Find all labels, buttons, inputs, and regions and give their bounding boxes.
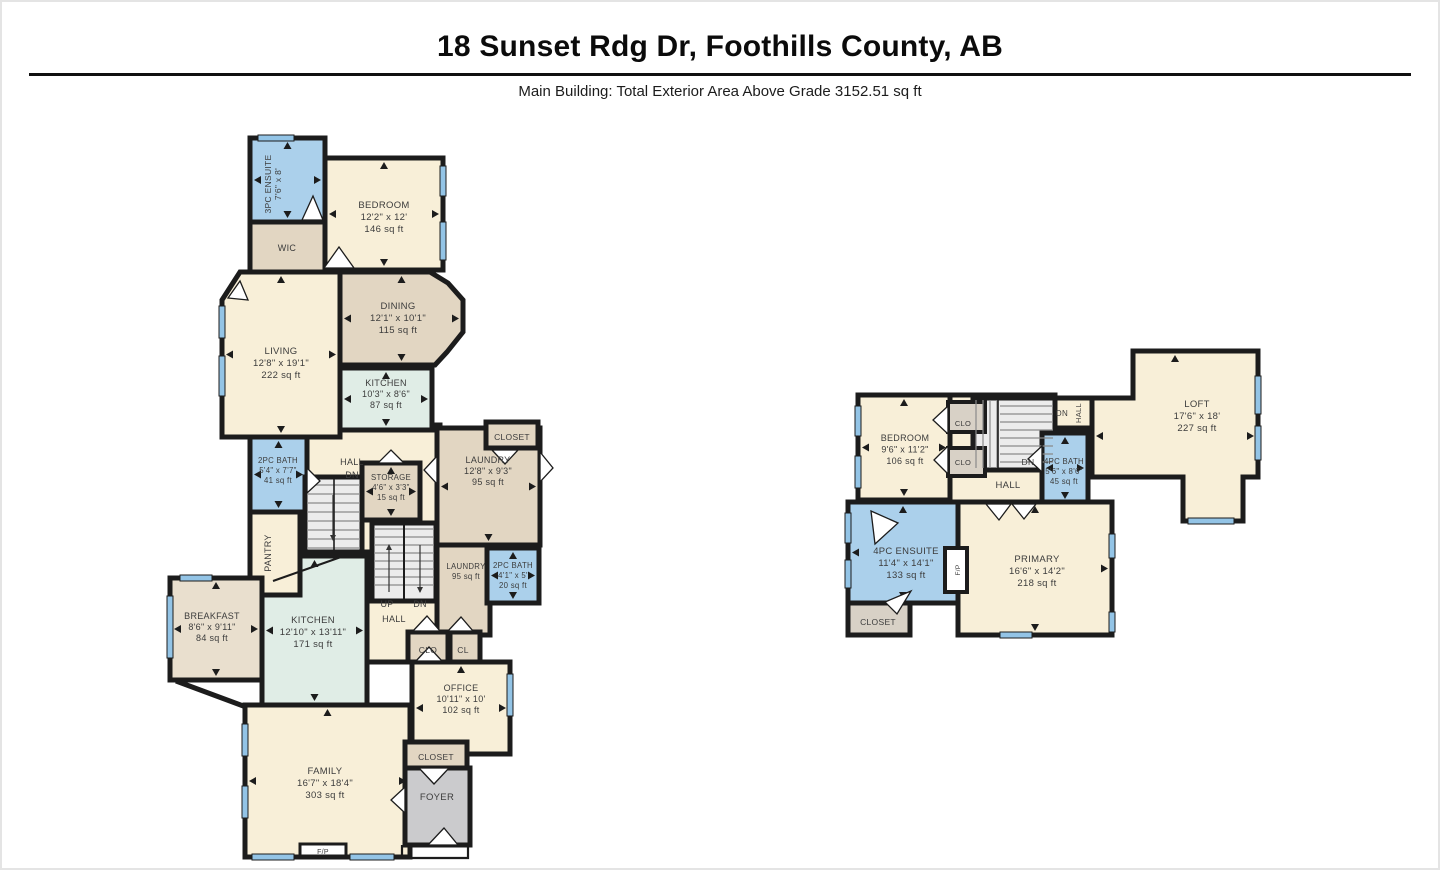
hall-upper-top xyxy=(1055,398,1092,428)
closet-cl xyxy=(450,632,480,662)
window xyxy=(1000,632,1032,638)
window xyxy=(855,456,861,488)
window xyxy=(855,406,861,436)
room-4pc-ensuite xyxy=(848,502,958,603)
window xyxy=(219,356,225,396)
room-dining xyxy=(340,272,463,365)
fireplace xyxy=(300,844,346,856)
door-swing xyxy=(540,452,553,482)
main-floor-plan: 3PC ENSUITE7'6" x 8'WICBEDROOM12'2" x 12… xyxy=(167,135,553,860)
floor-plan-canvas: 3PC ENSUITE7'6" x 8'WICBEDROOM12'2" x 12… xyxy=(0,0,1440,870)
window xyxy=(1188,518,1234,524)
window xyxy=(258,135,294,141)
window xyxy=(167,596,173,658)
window xyxy=(440,222,446,260)
window xyxy=(219,306,225,338)
wall xyxy=(176,681,246,707)
window xyxy=(507,674,513,716)
window xyxy=(1109,612,1115,632)
window xyxy=(242,724,248,756)
room-bedroom-upper xyxy=(858,395,950,500)
room-loft xyxy=(1092,351,1258,521)
window xyxy=(845,513,851,543)
closet-upper xyxy=(486,422,538,448)
window xyxy=(350,854,394,860)
page-subtitle: Main Building: Total Exterior Area Above… xyxy=(0,83,1440,100)
closet-foyer xyxy=(405,742,467,768)
room-breakfast xyxy=(170,578,262,680)
page-header: 18 Sunset Rdg Dr, Foothills County, AB M… xyxy=(0,0,1440,100)
room-family xyxy=(245,705,410,857)
window xyxy=(252,854,294,860)
fireplace xyxy=(945,548,967,592)
window xyxy=(242,786,248,818)
room-wic xyxy=(250,222,325,273)
page-title: 18 Sunset Rdg Dr, Foothills County, AB xyxy=(0,0,1440,64)
window xyxy=(1255,426,1261,460)
window xyxy=(845,560,851,588)
closet-clo-upper xyxy=(948,402,985,432)
upper-floor-plan: BEDROOM9'6" x 11'2"106 sq ft4PC BATH5'6"… xyxy=(845,351,1261,638)
floorplan-page: 18 Sunset Rdg Dr, Foothills County, AB M… xyxy=(0,0,1440,870)
window xyxy=(1255,376,1261,414)
title-divider xyxy=(29,73,1411,76)
room-primary xyxy=(958,502,1112,635)
closet-clo-upper xyxy=(948,448,985,476)
window xyxy=(180,575,212,581)
window xyxy=(1109,534,1115,558)
window xyxy=(440,166,446,196)
